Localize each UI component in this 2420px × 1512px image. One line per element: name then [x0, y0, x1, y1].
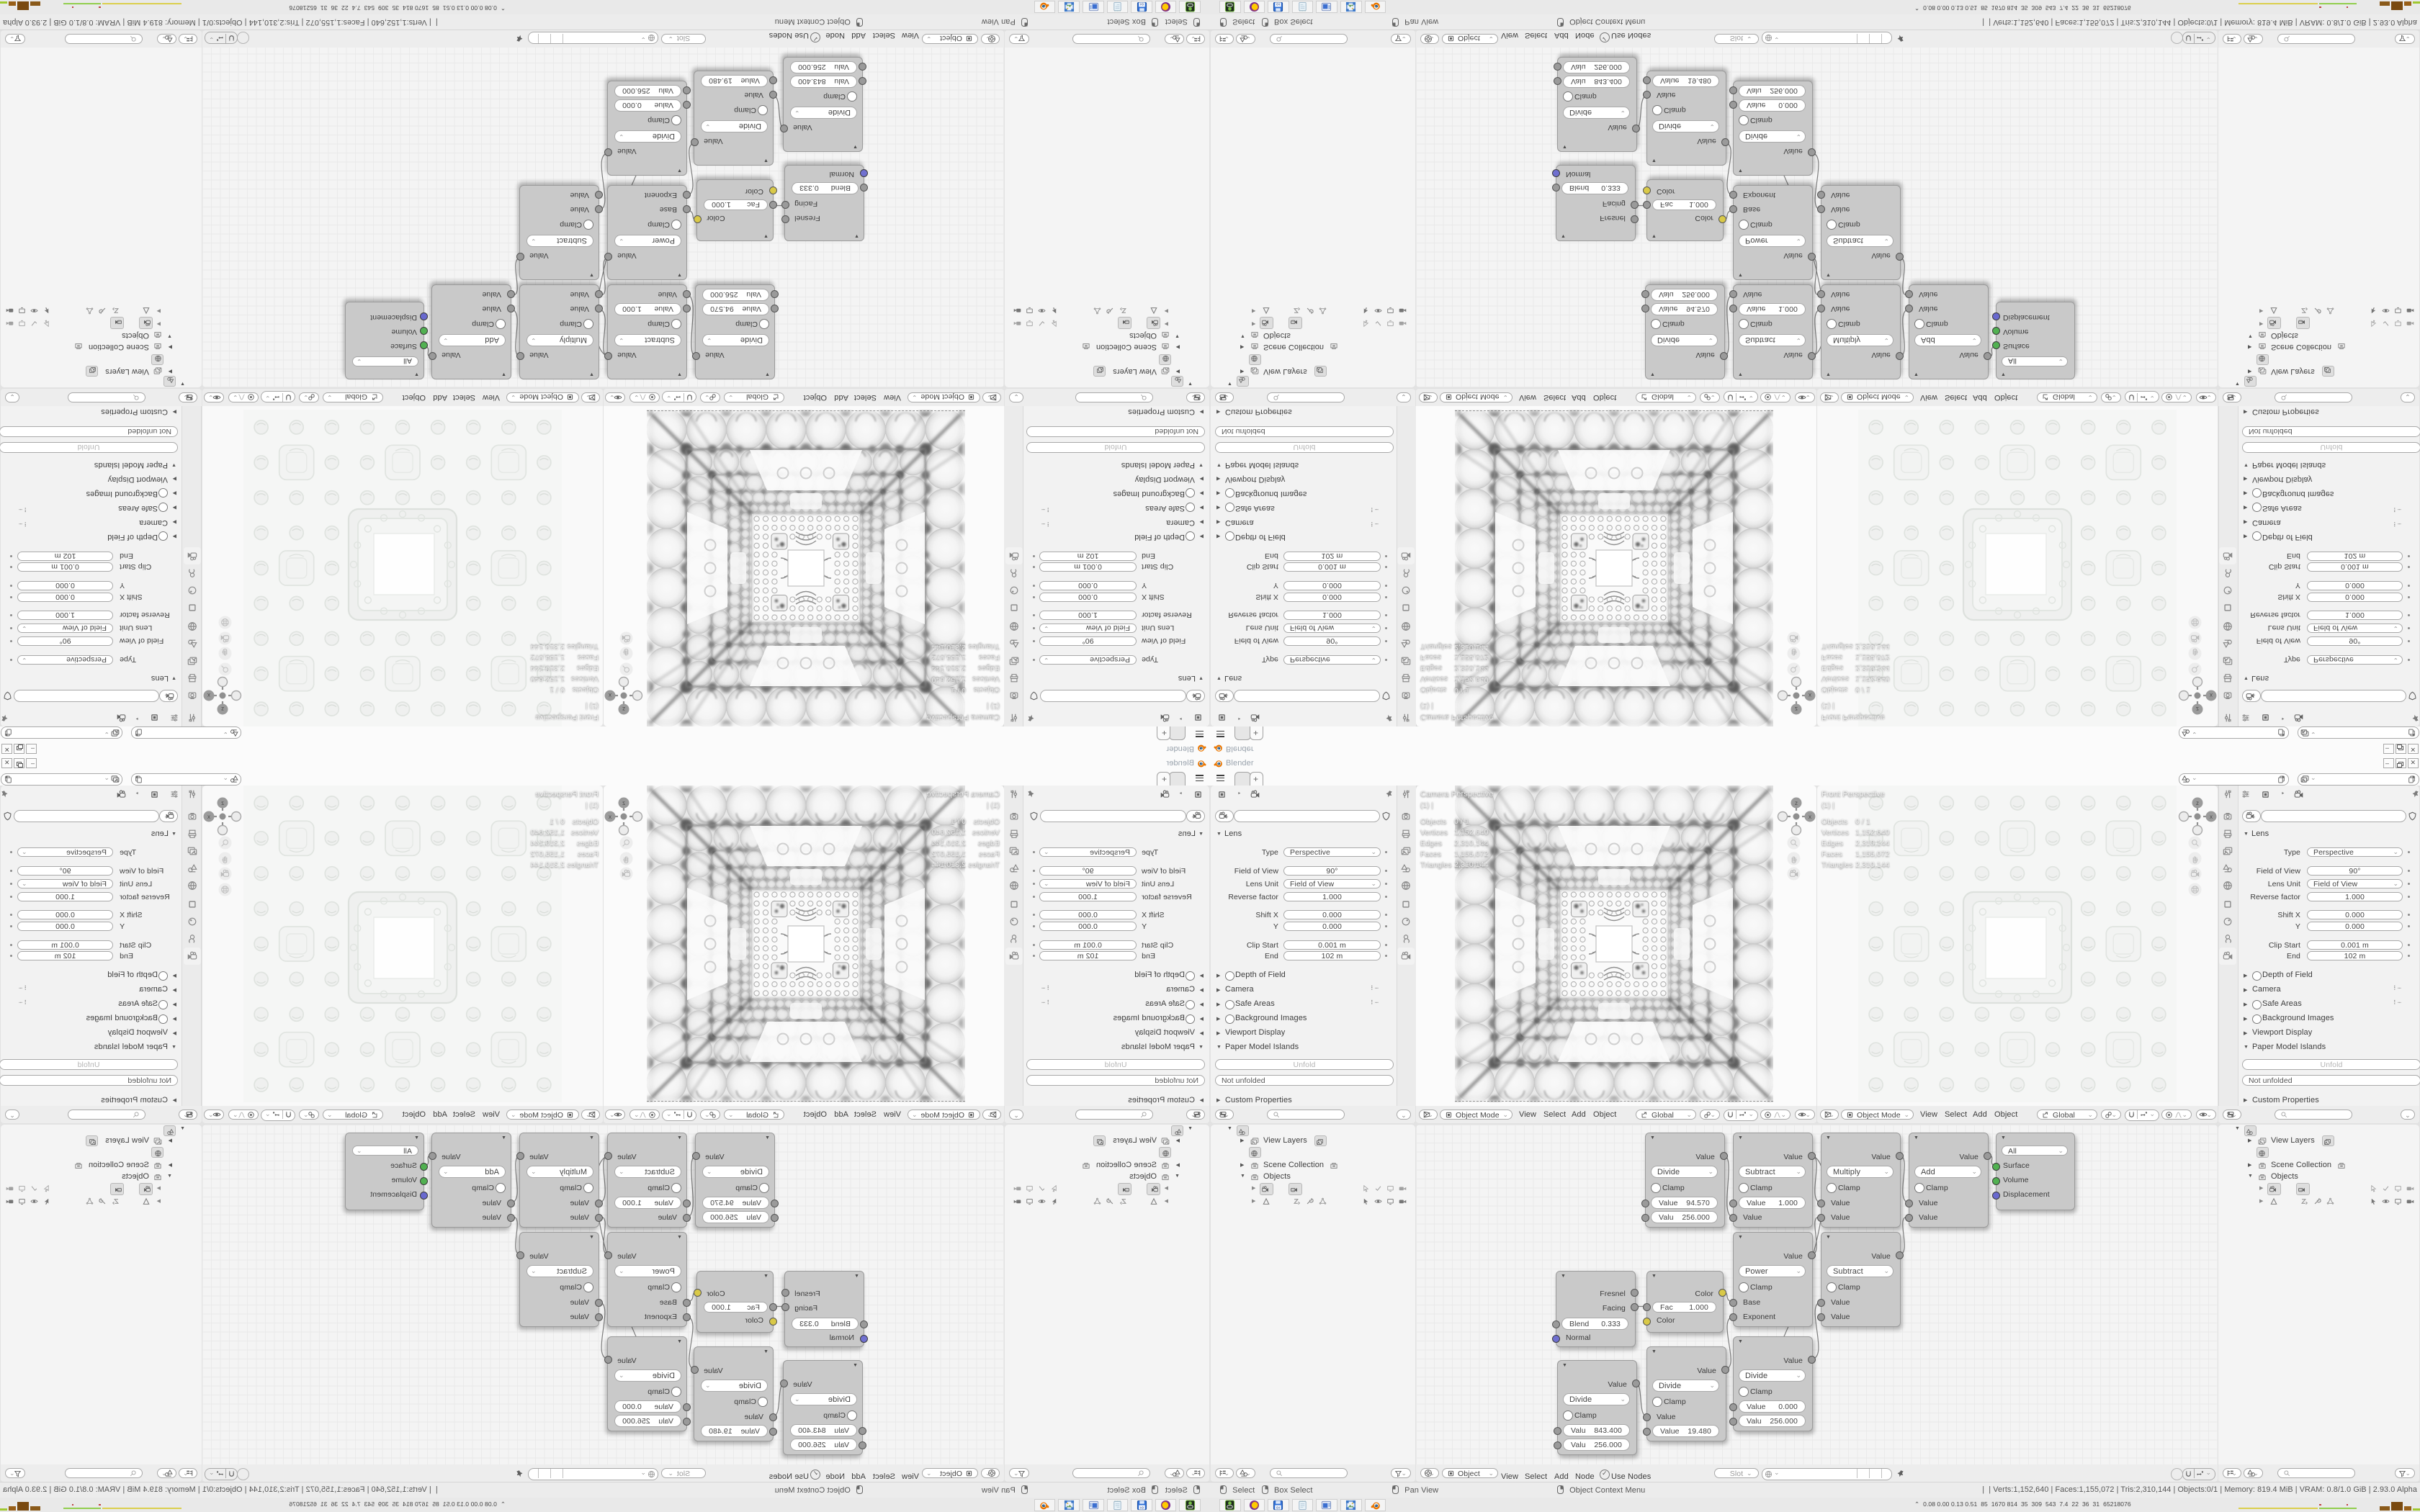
svg-text:z: z: [622, 800, 625, 806]
svg-text:x: x: [1809, 814, 1811, 820]
svg-text:z: z: [221, 800, 224, 806]
svg-text:x: x: [609, 692, 611, 698]
svg-text:z: z: [622, 706, 625, 712]
svg-text:z: z: [2196, 706, 2199, 712]
svg-text:z: z: [1795, 706, 1798, 712]
svg-text:z: z: [2196, 800, 2199, 806]
svg-text:x: x: [207, 814, 210, 820]
svg-text:x: x: [2210, 692, 2213, 698]
svg-text:z: z: [221, 706, 224, 712]
svg-text:x: x: [2210, 814, 2213, 820]
svg-text:z: z: [1795, 800, 1798, 806]
svg-text:x: x: [1809, 692, 1811, 698]
svg-text:x: x: [207, 692, 210, 698]
svg-text:x: x: [609, 814, 611, 820]
